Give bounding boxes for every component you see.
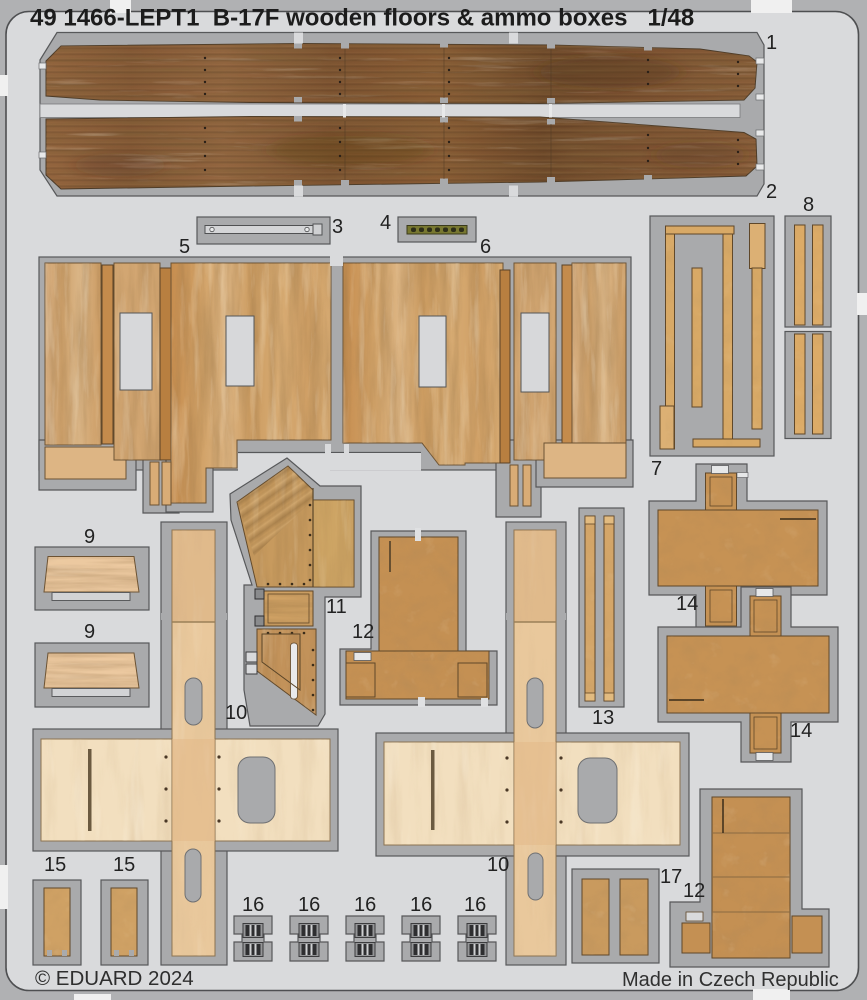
svg-text:16: 16 [298,894,320,916]
svg-text:9: 9 [84,526,95,548]
svg-text:13: 13 [592,707,614,729]
svg-text:11: 11 [326,596,347,618]
svg-text:7: 7 [651,458,662,480]
svg-text:12: 12 [352,621,374,643]
svg-text:12: 12 [683,880,705,902]
svg-text:Made in Czech Republic: Made in Czech Republic [622,969,839,991]
svg-text:2: 2 [766,181,777,203]
svg-text:3: 3 [332,216,343,238]
svg-text:14: 14 [790,720,812,742]
svg-text:16: 16 [242,894,264,916]
svg-text:5: 5 [179,236,190,258]
svg-text:15: 15 [113,854,135,876]
svg-text:1: 1 [766,32,777,54]
svg-text:49 1466-LEPT1 B-17F wooden fl: 49 1466-LEPT1 B-17F wooden floors & ammo… [30,5,694,32]
svg-text:10: 10 [487,854,509,876]
svg-text:16: 16 [354,894,376,916]
svg-text:17: 17 [660,866,682,888]
svg-text:8: 8 [803,194,814,216]
svg-text:10: 10 [225,702,247,724]
svg-text:16: 16 [464,894,486,916]
svg-text:6: 6 [480,236,491,258]
svg-text:9: 9 [84,621,95,643]
svg-text:16: 16 [410,894,432,916]
svg-text:14: 14 [676,593,698,615]
svg-text:© EDUARD 2024: © EDUARD 2024 [35,967,194,990]
svg-text:4: 4 [380,212,391,234]
svg-text:15: 15 [44,854,66,876]
